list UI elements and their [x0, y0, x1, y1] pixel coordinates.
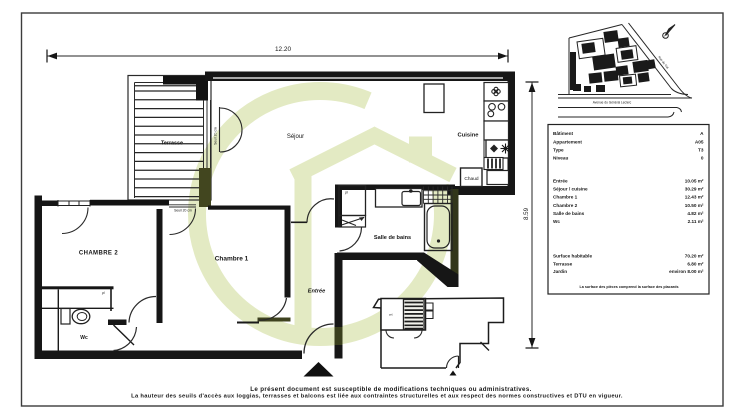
svg-text:Appartement: Appartement [553, 139, 582, 144]
svg-text:Terrasse: Terrasse [553, 261, 573, 266]
svg-text:4.82 m²: 4.82 m² [687, 211, 704, 216]
svg-text:Entrée: Entrée [308, 289, 325, 295]
svg-text:2.11 m²: 2.11 m² [688, 219, 704, 224]
svg-text:8.59: 8.59 [523, 207, 530, 220]
svg-text:Entrée: Entrée [553, 179, 568, 184]
svg-text:Seuil 20 cm: Seuil 20 cm [214, 127, 218, 145]
svg-text:Chambre 2: Chambre 2 [553, 203, 578, 208]
svg-text:Séjour / cuisine: Séjour / cuisine [553, 187, 588, 192]
svg-text:pl: pl [101, 291, 105, 295]
svg-text:Chambre 1: Chambre 1 [215, 256, 249, 263]
svg-text:10.50 m²: 10.50 m² [685, 203, 704, 208]
svg-text:Salle de bains: Salle de bains [553, 211, 585, 216]
svg-text:Chambre 1: Chambre 1 [553, 195, 578, 200]
svg-text:10.05 m²: 10.05 m² [685, 179, 704, 184]
svg-text:Wc: Wc [553, 219, 560, 224]
svg-text:Type: Type [553, 147, 564, 152]
svg-text:0: 0 [701, 156, 704, 161]
svg-text:A05: A05 [695, 139, 704, 144]
svg-text:Terrasse: Terrasse [161, 141, 183, 147]
svg-text:Cuisine: Cuisine [458, 133, 480, 139]
svg-text:CHAMBRE 2: CHAMBRE 2 [79, 251, 119, 257]
svg-text:Niveau: Niveau [553, 156, 569, 161]
svg-text:Avenue du Général Leclerc: Avenue du Général Leclerc [593, 101, 632, 105]
svg-text:Wc: Wc [80, 335, 88, 341]
svg-text:cel.: cel. [389, 313, 394, 317]
svg-text:Surface habitable: Surface habitable [553, 254, 592, 259]
svg-text:Bâtiment: Bâtiment [553, 131, 573, 136]
svg-text:12.43 m²: 12.43 m² [685, 195, 704, 200]
svg-text:T3: T3 [698, 147, 704, 152]
svg-text:Salle de bains: Salle de bains [374, 235, 411, 241]
svg-text:30.29 m²: 30.29 m² [685, 187, 704, 192]
svg-text:Séjour: Séjour [287, 134, 304, 140]
svg-text:70.20 m²: 70.20 m² [685, 254, 704, 259]
svg-text:La surface des pièces comprend: La surface des pièces comprend la surfac… [580, 285, 679, 289]
svg-text:La hauteur des seuils d'accès: La hauteur des seuils d'accès aux loggia… [131, 394, 623, 400]
svg-text:Chaud: Chaud [464, 176, 478, 182]
svg-text:Seuil 20 cm: Seuil 20 cm [174, 209, 192, 213]
svg-text:6.80 m²: 6.80 m² [687, 261, 704, 266]
svg-text:Jardin: Jardin [553, 269, 567, 274]
svg-text:Le présent document est suscep: Le présent document est susceptible de m… [250, 386, 531, 393]
svg-text:12.20: 12.20 [275, 46, 291, 53]
svg-text:pl: pl [344, 191, 348, 195]
svg-text:environ 8.00 m²: environ 8.00 m² [669, 269, 704, 274]
